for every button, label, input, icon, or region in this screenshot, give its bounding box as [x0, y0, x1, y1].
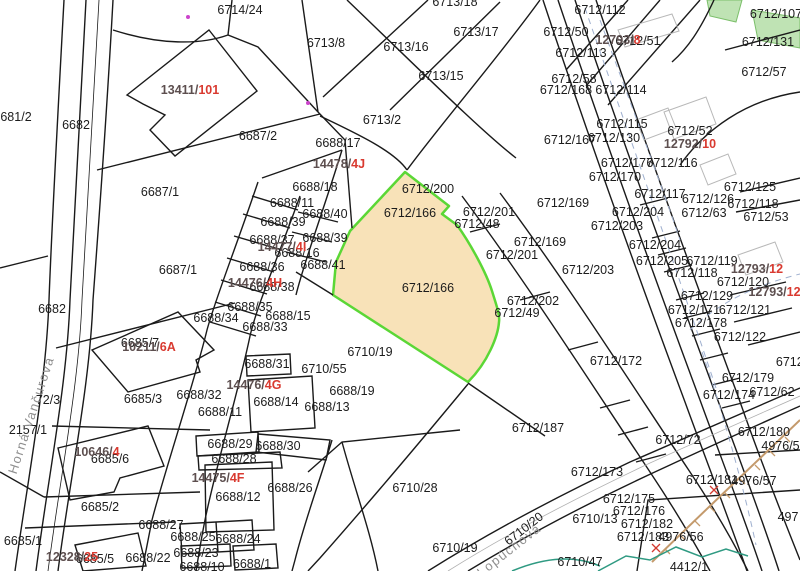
- building-label-14476-4G: 14476/4G: [227, 379, 282, 392]
- parcel-label-6712-174: 6712/174: [703, 389, 755, 402]
- parcel-label-6712-182: 6712/182: [621, 518, 673, 531]
- parcel-label-6688-23: 6688/23: [173, 547, 218, 560]
- parcel-label-6712-173: 6712/173: [571, 466, 623, 479]
- building-label-suffix: 4F: [230, 471, 245, 485]
- parcel-label-6688-29: 6688/29: [207, 438, 252, 451]
- parcel-label-6688-41: 6688/41: [300, 259, 345, 272]
- parcel-label-497: 497: [778, 511, 799, 524]
- parcel-label-6712-130: 6712/130: [588, 132, 640, 145]
- parcel-label-6712-201: 6712/201: [486, 249, 538, 262]
- parcel-label-6688-10: 6688/10: [179, 561, 224, 571]
- building-label-prefix: 14475/: [192, 471, 230, 485]
- street-label-lop-chov-: Lopúchová: [475, 521, 544, 571]
- parcel-label-6714-24: 6714/24: [217, 4, 262, 17]
- parcel-label-6712-126: 6712/126: [682, 193, 734, 206]
- parcel-label-6712-172: 6712/172: [590, 355, 642, 368]
- parcel-label-6688-18: 6688/18: [292, 181, 337, 194]
- parcel-label-6688-32: 6688/32: [176, 389, 221, 402]
- parcel-label-6712-72: 6712/72: [655, 434, 700, 447]
- building-label-suffix: 25: [84, 550, 98, 564]
- parcel-label-6712-116: 6712/116: [646, 157, 697, 170]
- parcel-label-6712-118: 6712/118: [727, 198, 778, 211]
- parcel-label-6712-121: 6712/121: [719, 304, 771, 317]
- building-label-prefix: 14478/: [313, 157, 351, 171]
- parcel-label-6687-1: 6687/1: [159, 264, 197, 277]
- building-label-12328-25: 12328/25: [46, 551, 98, 564]
- parcel-label-6688-1: 6688/1: [233, 558, 271, 571]
- building-label-14478-4J: 14478/4J: [313, 158, 365, 171]
- building-label-12793-12A: 12793/12A: [748, 286, 800, 299]
- building-label-suffix: 8: [634, 33, 641, 47]
- building-label-14476-4H: 14476/4H: [228, 277, 282, 290]
- parcel-label-6688-12: 6688/12: [215, 491, 260, 504]
- parcel-label-6712-1: 6712/1: [776, 356, 800, 369]
- parcel-label-6687-2: 6687/2: [239, 130, 277, 143]
- parcel-label-6713-2: 6713/2: [363, 114, 401, 127]
- parcel-label-6712-168: 6712/168: [540, 84, 592, 97]
- parcel-label-6713-15: 6713/15: [418, 70, 463, 83]
- parcel-label-6688-28: 6688/28: [211, 453, 256, 466]
- parcel-label-6688-11: 6688/11: [198, 406, 242, 419]
- parcel-label-6712-171: 6712/171: [668, 304, 720, 317]
- map-labels-layer: 6714/24681/2668266826687/26687/16687/167…: [0, 0, 800, 571]
- parcel-label-6712-113: 6712/113: [555, 47, 606, 60]
- building-label-prefix: 12793/: [731, 262, 769, 276]
- parcel-label-6713-17: 6713/17: [453, 26, 498, 39]
- parcel-label-6710-55: 6710/55: [301, 363, 346, 376]
- parcel-label-6710-13: 6710/13: [572, 513, 617, 526]
- parcel-label-4412-1: 4412/1: [670, 561, 708, 571]
- parcel-label-6712-57: 6712/57: [741, 66, 786, 79]
- parcel-label-6688-14: 6688/14: [253, 396, 298, 409]
- building-label-prefix: 12793/: [595, 33, 633, 47]
- parcel-label-6688-13: 6688/13: [304, 401, 349, 414]
- parcel-label-6713-8: 6713/8: [307, 37, 345, 50]
- parcel-label-6713-18: 6713/18: [432, 0, 477, 8]
- parcel-label-6688-40: 6688/40: [302, 208, 347, 221]
- parcel-label-6712-204: 6712/204: [629, 239, 681, 252]
- parcel-label-6712-118: 6712/118: [666, 267, 717, 280]
- parcel-label-6712-169: 6712/169: [537, 197, 589, 210]
- building-label-prefix: 13411/: [161, 83, 199, 97]
- building-label-10646-4: 10646/4: [74, 446, 119, 459]
- street-label-horn-van-urova: Horná Vančurova: [6, 355, 56, 476]
- parcel-label-6712-112: 6712/112: [574, 4, 625, 17]
- building-label-14477-4I: 14477/4I: [258, 241, 307, 254]
- parcel-label-6712-62: 6712/62: [749, 386, 794, 399]
- parcel-label-6712-63: 6712/63: [681, 207, 726, 220]
- building-label-12792-10: 12792/10: [664, 138, 716, 151]
- building-label-suffix: 10: [702, 137, 716, 151]
- parcel-label-6712-200: 6712/200: [402, 183, 454, 196]
- parcel-label-6688-19: 6688/19: [329, 385, 374, 398]
- parcel-label-6712-203: 6712/203: [591, 220, 643, 233]
- parcel-label-6712-181: 6712/181: [686, 474, 738, 487]
- building-label-prefix: 12328/: [46, 550, 84, 564]
- parcel-label-6712-53: 6712/53: [743, 211, 788, 224]
- parcel-label-6688-25: 6688/25: [170, 531, 215, 544]
- parcel-label-6712-52: 6712/52: [667, 125, 712, 138]
- parcel-label-6685-2: 6685/2: [81, 501, 119, 514]
- parcel-label-6710-47: 6710/47: [557, 556, 602, 569]
- parcel-label-6682: 6682: [62, 119, 90, 132]
- building-label-suffix: 4J: [351, 157, 365, 171]
- parcel-label-6682: 6682: [38, 303, 66, 316]
- parcel-label-6688-26: 6688/26: [267, 482, 312, 495]
- building-label-prefix: 10646/: [74, 445, 112, 459]
- building-label-13411-101: 13411/101: [161, 84, 219, 97]
- parcel-label-6688-17: 6688/17: [315, 137, 360, 150]
- building-label-prefix: 14477/: [258, 240, 296, 254]
- parcel-label-6713-16: 6713/16: [383, 41, 428, 54]
- parcel-label-6712-114: 6712/114: [595, 84, 646, 97]
- building-label-suffix: 4H: [266, 276, 282, 290]
- building-label-prefix: 14476/: [227, 378, 265, 392]
- building-label-suffix: 101: [198, 83, 219, 97]
- cadastral-map-canvas[interactable]: 6714/24681/2668266826687/26687/16687/167…: [0, 0, 800, 571]
- parcel-label-6712-179: 6712/179: [722, 372, 774, 385]
- building-label-12793-12: 12793/12: [731, 263, 783, 276]
- building-label-prefix: 12793/: [748, 285, 786, 299]
- parcel-label-6688-33: 6688/33: [242, 321, 287, 334]
- parcel-label-4976-56: 4976/56: [658, 531, 703, 544]
- building-label-suffix: 12: [769, 262, 783, 276]
- parcel-label-6688-39: 6688/39: [302, 232, 347, 245]
- building-label-suffix: 4: [113, 445, 120, 459]
- parcel-label-6685-1: 6685/1: [4, 535, 42, 548]
- parcel-label-6712-203: 6712/203: [562, 264, 614, 277]
- parcel-label-6712-49: 6712/49: [494, 307, 539, 320]
- parcel-label-6688-39: 6688/39: [260, 216, 305, 229]
- parcel-label-6712-177: 6712/177: [601, 157, 653, 170]
- parcel-label-6712-178: 6712/178: [675, 317, 727, 330]
- building-label-prefix: 14476/: [228, 276, 266, 290]
- parcel-label-6710-19: 6710/19: [432, 542, 477, 555]
- parcel-label-6712-176: 6712/176: [613, 505, 665, 518]
- parcel-label-6712-48: 6712/48: [454, 218, 499, 231]
- building-label-prefix: 12792/: [664, 137, 702, 151]
- parcel-label-6712-169: 6712/169: [514, 236, 566, 249]
- building-label-suffix: 12A: [787, 285, 800, 299]
- parcel-label-6712-107: 6712/107: [750, 8, 800, 21]
- parcel-label-6710-28: 6710/28: [392, 482, 437, 495]
- parcel-label-6712-204: 6712/204: [612, 206, 664, 219]
- parcel-label-6688-31: 6688/31: [244, 358, 289, 371]
- parcel-label-4976-58: 4976/58: [761, 440, 800, 453]
- parcel-label-6712-166: 6712/166: [384, 207, 436, 220]
- parcel-label-6712-50: 6712/50: [543, 26, 588, 39]
- parcel-label-6688-36: 6688/36: [239, 261, 284, 274]
- parcel-label-6712-166: 6712/166: [402, 282, 454, 295]
- parcel-label-6712-129: 6712/129: [681, 290, 733, 303]
- parcel-label-6712-180: 6712/180: [738, 426, 790, 439]
- parcel-label-6712-131: 6712/131: [742, 36, 794, 49]
- parcel-label-681-2: 681/2: [0, 111, 31, 124]
- parcel-label-6687-1: 6687/1: [141, 186, 179, 199]
- parcel-label-6685-3: 6685/3: [124, 393, 162, 406]
- parcel-label-6688-34: 6688/34: [193, 312, 238, 325]
- parcel-label-6710-19: 6710/19: [347, 346, 392, 359]
- parcel-label-6712-115: 6712/115: [596, 118, 647, 131]
- parcel-label-6688-30: 6688/30: [255, 440, 300, 453]
- building-label-suffix: 6A: [160, 340, 176, 354]
- building-label-12793-8: 12793/8: [595, 34, 640, 47]
- parcel-label-6688-22: 6688/22: [125, 552, 170, 565]
- building-label-14475-4F: 14475/4F: [192, 472, 245, 485]
- building-label-prefix: 10211/: [122, 340, 160, 354]
- parcel-label-6712-122: 6712/122: [714, 331, 766, 344]
- parcel-label-6712-170: 6712/170: [589, 171, 641, 184]
- building-label-suffix: 4I: [296, 240, 306, 254]
- parcel-label-6712-117: 6712/117: [634, 188, 685, 201]
- parcel-label-4976-57: 4976/57: [731, 475, 776, 488]
- parcel-label-6712-187: 6712/187: [512, 422, 564, 435]
- parcel-label-6688-24: 6688/24: [215, 533, 260, 546]
- building-label-suffix: 4G: [265, 378, 282, 392]
- building-label-10211-6A: 10211/6A: [122, 341, 176, 354]
